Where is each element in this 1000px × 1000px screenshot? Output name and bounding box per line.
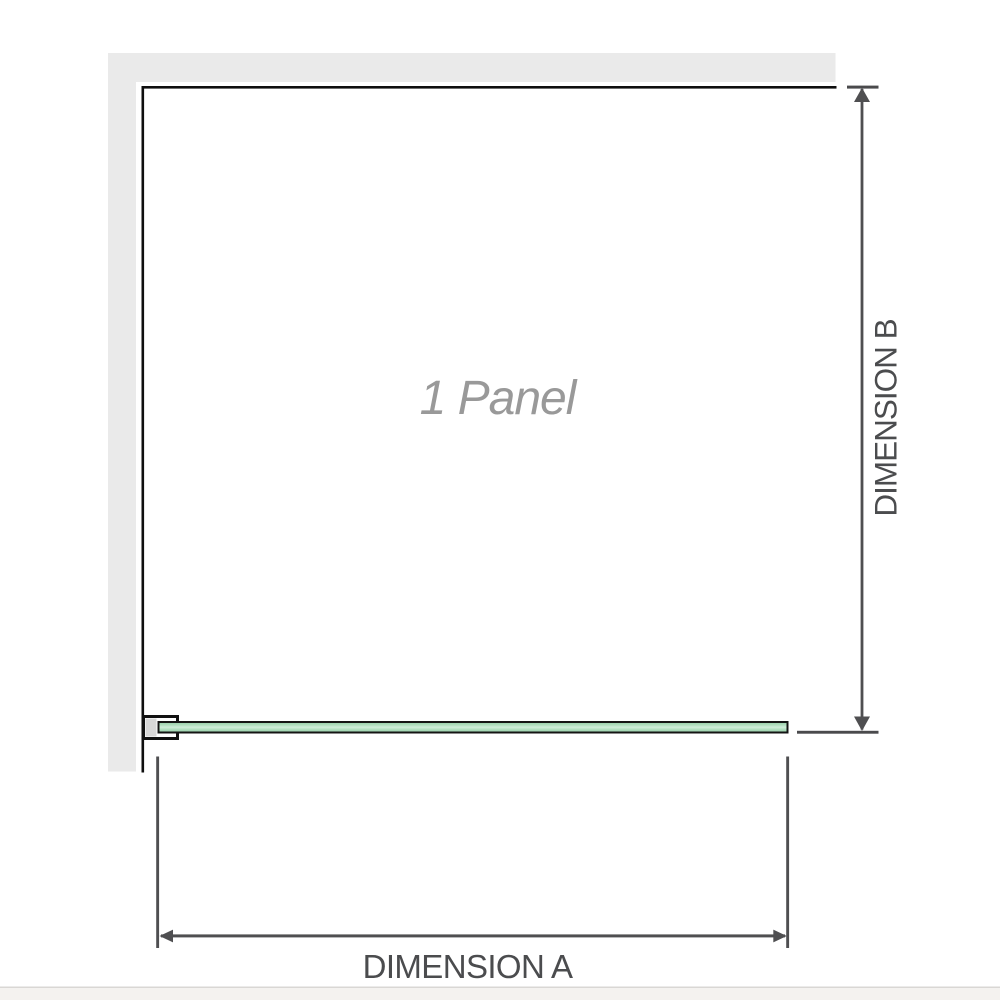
svg-text:DIMENSION B: DIMENSION B [868, 319, 904, 516]
svg-text:1 Panel: 1 Panel [420, 372, 578, 425]
svg-text:DIMENSION A: DIMENSION A [363, 948, 573, 985]
